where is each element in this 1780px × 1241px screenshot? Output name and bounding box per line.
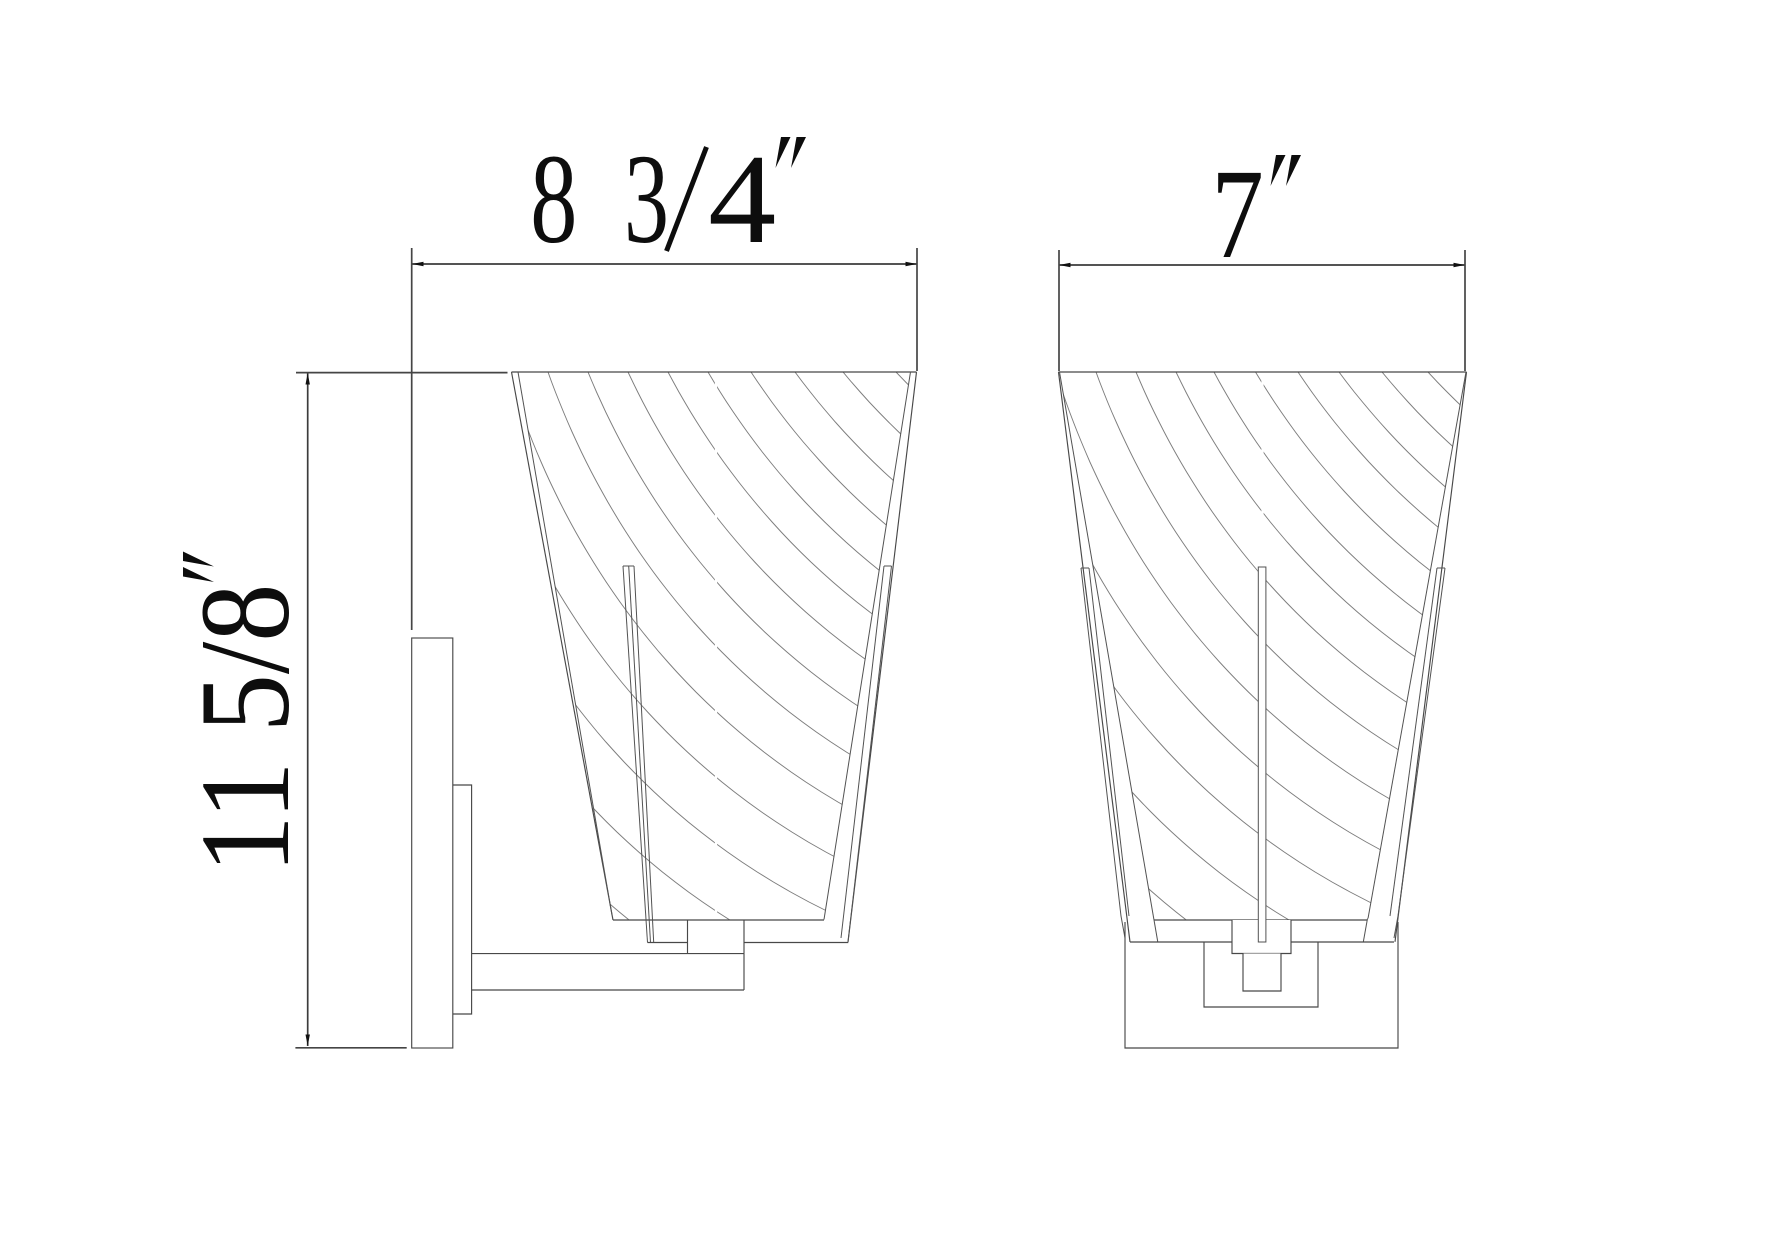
svg-text:3: 3 <box>624 128 669 270</box>
svg-text:7: 7 <box>1211 143 1264 285</box>
svg-text:4: 4 <box>708 128 776 270</box>
svg-text:11 5/8: 11 5/8 <box>174 584 316 874</box>
svg-text:8: 8 <box>530 128 577 270</box>
